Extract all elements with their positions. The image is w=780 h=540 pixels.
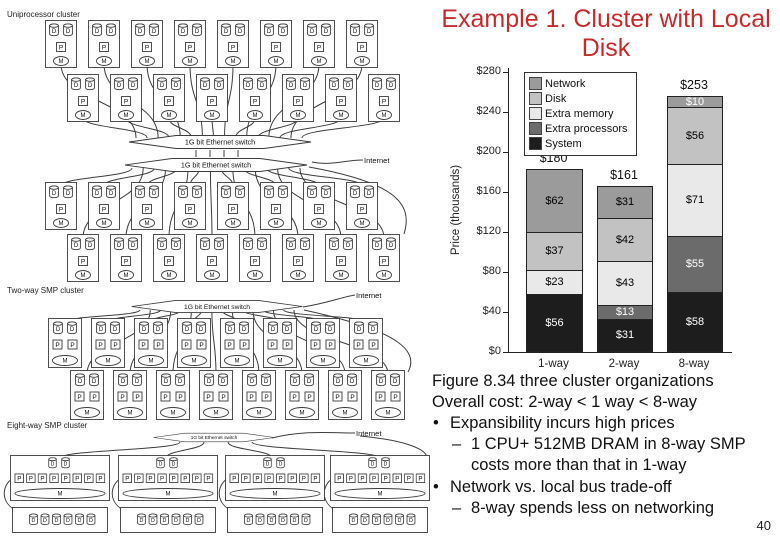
twonode xyxy=(221,319,254,368)
uninode xyxy=(347,183,378,230)
uninode xyxy=(218,183,249,230)
bar-total-label: $253 xyxy=(655,78,733,92)
uninode xyxy=(132,21,163,68)
twonode xyxy=(372,371,405,420)
twonode xyxy=(114,371,147,420)
bar-8-way: $58$55$71$56$10 xyxy=(667,96,723,352)
diskbox xyxy=(13,508,108,533)
bar-segment: $13 xyxy=(598,305,652,319)
uninode xyxy=(89,183,120,230)
legend-label: Network xyxy=(545,78,585,90)
uninode xyxy=(154,75,185,122)
twonode xyxy=(307,319,340,368)
bar-segment: $55 xyxy=(668,236,722,292)
notes-block: Figure 8.34 three cluster organizations … xyxy=(432,371,780,519)
connection-line xyxy=(210,168,212,238)
uninode xyxy=(89,21,120,68)
page-number: 40 xyxy=(757,518,771,533)
uninode xyxy=(240,235,271,282)
bar-segment: $42 xyxy=(598,218,652,261)
sub-bullet-text: 1 CPU+ 512MB DRAM in 8-way SMP costs mor… xyxy=(471,434,780,476)
ethernet-switch xyxy=(132,300,303,312)
twonode xyxy=(350,319,383,368)
bullet-marker: • xyxy=(432,413,450,434)
slide: D P M xyxy=(0,0,780,540)
legend-swatch xyxy=(529,77,542,90)
uninode xyxy=(283,75,314,122)
y-tick-label: $200 xyxy=(458,145,501,157)
twonode xyxy=(264,319,297,368)
twonode xyxy=(49,319,82,368)
uninode xyxy=(197,235,228,282)
ethernet-switch xyxy=(129,136,311,149)
legend-item: Extra memory xyxy=(529,107,628,120)
y-axis-line xyxy=(508,68,509,353)
y-tick-label: $280 xyxy=(458,65,501,77)
uninode xyxy=(326,235,357,282)
x-tick-label: 8-way xyxy=(657,358,731,370)
twonode xyxy=(157,371,190,420)
ethernet-switch xyxy=(154,433,275,442)
uninode xyxy=(175,183,206,230)
uninode xyxy=(46,21,77,68)
bar-segment: $37 xyxy=(527,232,582,270)
uninode xyxy=(111,235,142,282)
diagram-nodes xyxy=(11,21,430,533)
uninode xyxy=(304,183,335,230)
bar-2-way: $31$13$43$42$31 xyxy=(597,186,653,352)
sub-bullet-item: – 1 CPU+ 512MB DRAM in 8-way SMP costs m… xyxy=(452,434,780,476)
uninode xyxy=(261,183,292,230)
uninode xyxy=(369,235,400,282)
uninode xyxy=(175,21,206,68)
legend-item: Network xyxy=(529,77,628,90)
connection-line xyxy=(303,295,355,307)
internet-label: Internet xyxy=(356,291,382,300)
uninode xyxy=(369,75,400,122)
uninode xyxy=(240,75,271,122)
eightnode xyxy=(331,456,430,501)
x-tick-label: 1-way xyxy=(516,358,591,370)
bullet-text: Expansibility incurs high prices xyxy=(450,413,675,434)
diskbox xyxy=(228,508,323,533)
uninode xyxy=(218,21,249,68)
legend-swatch xyxy=(529,107,542,120)
y-tick-label: $160 xyxy=(458,185,501,197)
legend-item: Disk xyxy=(529,92,628,105)
uninode xyxy=(304,21,335,68)
ethernet-switch xyxy=(125,159,307,172)
connection-line xyxy=(272,432,355,438)
legend-label: Extra memory xyxy=(545,108,613,120)
chart-area: $0$40$80$120$160$200$240$280$56$23$37$62… xyxy=(432,58,742,370)
uninode xyxy=(261,21,292,68)
connection-line xyxy=(212,310,216,374)
bar-1-way: $56$23$37$62 xyxy=(526,169,583,352)
legend-swatch xyxy=(529,122,542,135)
y-tick-label: $40 xyxy=(458,305,501,317)
legend-label: System xyxy=(545,138,582,150)
bullet-item: • Network vs. local bus trade-off xyxy=(432,477,780,498)
bullet-text: Network vs. local bus trade-off xyxy=(450,477,672,498)
bar-segment: $62 xyxy=(527,169,582,232)
sub-bullet-marker: – xyxy=(452,434,471,476)
bar-segment: $31 xyxy=(598,186,652,218)
legend-swatch xyxy=(529,137,542,150)
twonode xyxy=(71,371,104,420)
cluster-section-label-two-way: Two-way SMP cluster xyxy=(7,286,95,296)
cluster-section-label-uniprocessor: Uniprocessor cluster xyxy=(7,10,95,20)
uninode xyxy=(283,235,314,282)
legend-item: Extra processors xyxy=(529,122,628,135)
uninode xyxy=(326,75,357,122)
uninode xyxy=(132,183,163,230)
eightnode xyxy=(11,456,110,501)
uninode xyxy=(111,75,142,122)
y-tick-label: $120 xyxy=(458,225,501,237)
twonode xyxy=(286,371,319,420)
bar-segment: $56 xyxy=(668,107,722,164)
y-tick-label: $0 xyxy=(458,345,501,357)
uninode xyxy=(154,235,185,282)
diskbox xyxy=(121,508,216,533)
y-axis-title: Price (thousands) xyxy=(450,140,462,280)
x-tick-label: 2-way xyxy=(587,358,661,370)
twonode xyxy=(178,319,211,368)
twonode xyxy=(200,371,233,420)
eightnode xyxy=(119,456,218,501)
twonode xyxy=(329,371,362,420)
internet-label: Internet xyxy=(364,156,390,165)
x-axis-line xyxy=(508,352,732,353)
uninode xyxy=(197,75,228,122)
legend-swatch xyxy=(529,92,542,105)
eightnode xyxy=(226,456,325,501)
bar-segment: $71 xyxy=(668,164,722,236)
uninode xyxy=(68,235,99,282)
bar-segment: $10 xyxy=(668,96,722,107)
uninode xyxy=(68,75,99,122)
legend-label: Extra processors xyxy=(545,123,628,135)
bullet-item: • Expansibility incurs high prices xyxy=(432,413,780,434)
slide-title: Example 1. Cluster with Local Disk xyxy=(436,5,776,64)
y-tick-label: $80 xyxy=(458,265,501,277)
cluster-diagram-panel: D P M xyxy=(0,0,432,540)
uninode xyxy=(46,183,77,230)
content-panel: Example 1. Cluster with Local Disk $0$40… xyxy=(432,0,780,540)
diskbox xyxy=(333,508,428,533)
bar-total-label: $161 xyxy=(585,168,663,182)
twonode xyxy=(135,319,168,368)
y-tick-label: $240 xyxy=(458,105,501,117)
figure-caption: Figure 8.34 three cluster organizations xyxy=(432,371,780,392)
cluster-section-label-eight-way: Eight-way SMP cluster xyxy=(7,421,95,431)
chart-legend: NetworkDiskExtra memoryExtra processorsS… xyxy=(524,72,637,156)
twonode xyxy=(243,371,276,420)
bar-segment: $58 xyxy=(668,292,722,351)
legend-item: System xyxy=(529,137,628,150)
bar-segment: $31 xyxy=(598,319,652,351)
connection-line xyxy=(312,160,363,163)
bar-segment: $56 xyxy=(527,294,582,351)
cluster-diagram: D P M xyxy=(0,0,432,540)
overall-cost-line: Overall cost: 2-way < 1 way < 8-way xyxy=(432,392,780,413)
sub-bullet-text: 8-way spends less on networking xyxy=(471,498,714,519)
twonode xyxy=(92,319,125,368)
sub-bullet-marker: – xyxy=(452,498,471,519)
bar-segment: $43 xyxy=(598,261,652,305)
bullet-marker: • xyxy=(432,477,450,498)
bar-segment: $23 xyxy=(527,270,582,294)
internet-label: Internet xyxy=(356,429,382,438)
uninode xyxy=(347,21,378,68)
legend-label: Disk xyxy=(545,93,566,105)
sub-bullet-item: – 8-way spends less on networking xyxy=(452,498,780,519)
connection-line xyxy=(360,436,427,457)
